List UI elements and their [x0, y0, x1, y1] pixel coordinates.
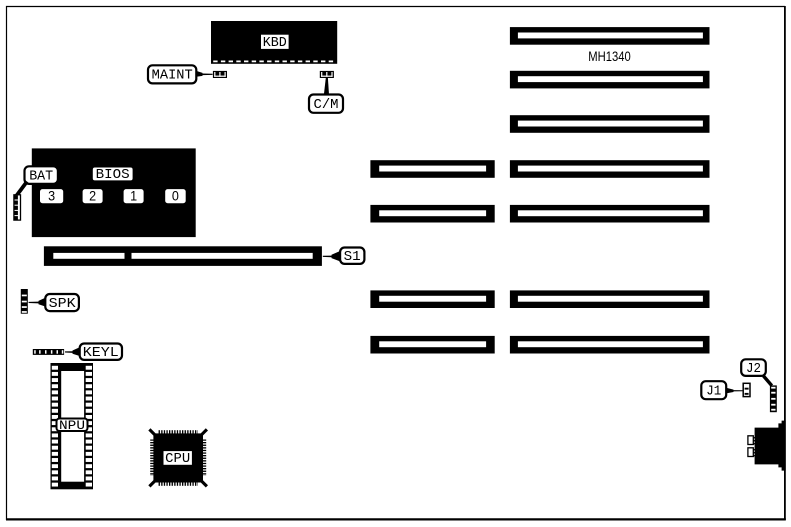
svg-text:0: 0 [172, 188, 179, 203]
svg-text:KBD: KBD [263, 36, 287, 51]
svg-text:1: 1 [130, 188, 137, 203]
svg-text:MH1340: MH1340 [588, 49, 631, 64]
svg-text:J2: J2 [746, 362, 761, 377]
svg-text:BAT: BAT [29, 169, 53, 184]
svg-text:3: 3 [48, 188, 55, 203]
svg-text:C/M: C/M [314, 98, 339, 113]
svg-text:CPU: CPU [165, 452, 190, 467]
svg-text:2: 2 [89, 188, 96, 203]
svg-text:SPK: SPK [49, 297, 77, 312]
svg-text:BIOS: BIOS [96, 168, 130, 183]
svg-text:MAINT: MAINT [152, 69, 193, 84]
svg-text:S1: S1 [344, 250, 361, 265]
svg-text:NPU: NPU [59, 419, 85, 433]
svg-text:KEYL: KEYL [83, 346, 119, 361]
svg-text:J1: J1 [706, 384, 721, 399]
